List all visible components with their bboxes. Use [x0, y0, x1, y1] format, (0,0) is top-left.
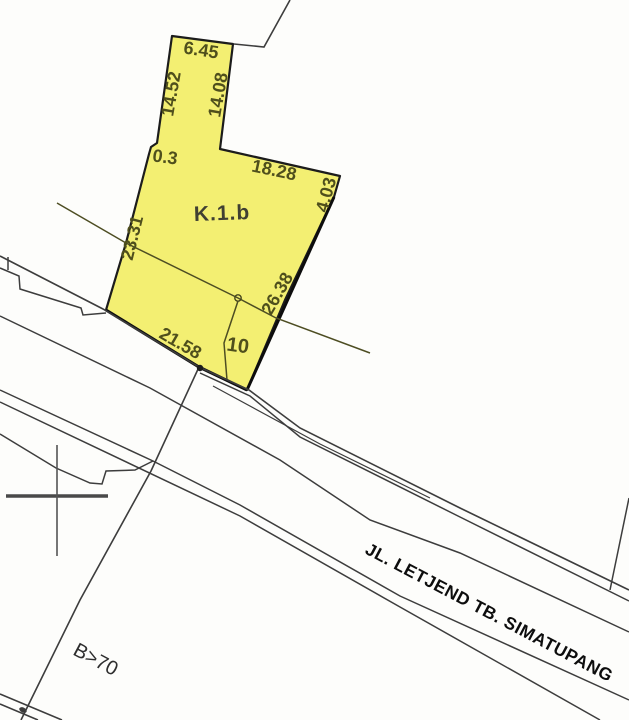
- svg-text:K.1.b: K.1.b: [193, 201, 250, 226]
- svg-text:10: 10: [225, 334, 250, 359]
- svg-text:0.3: 0.3: [151, 145, 179, 168]
